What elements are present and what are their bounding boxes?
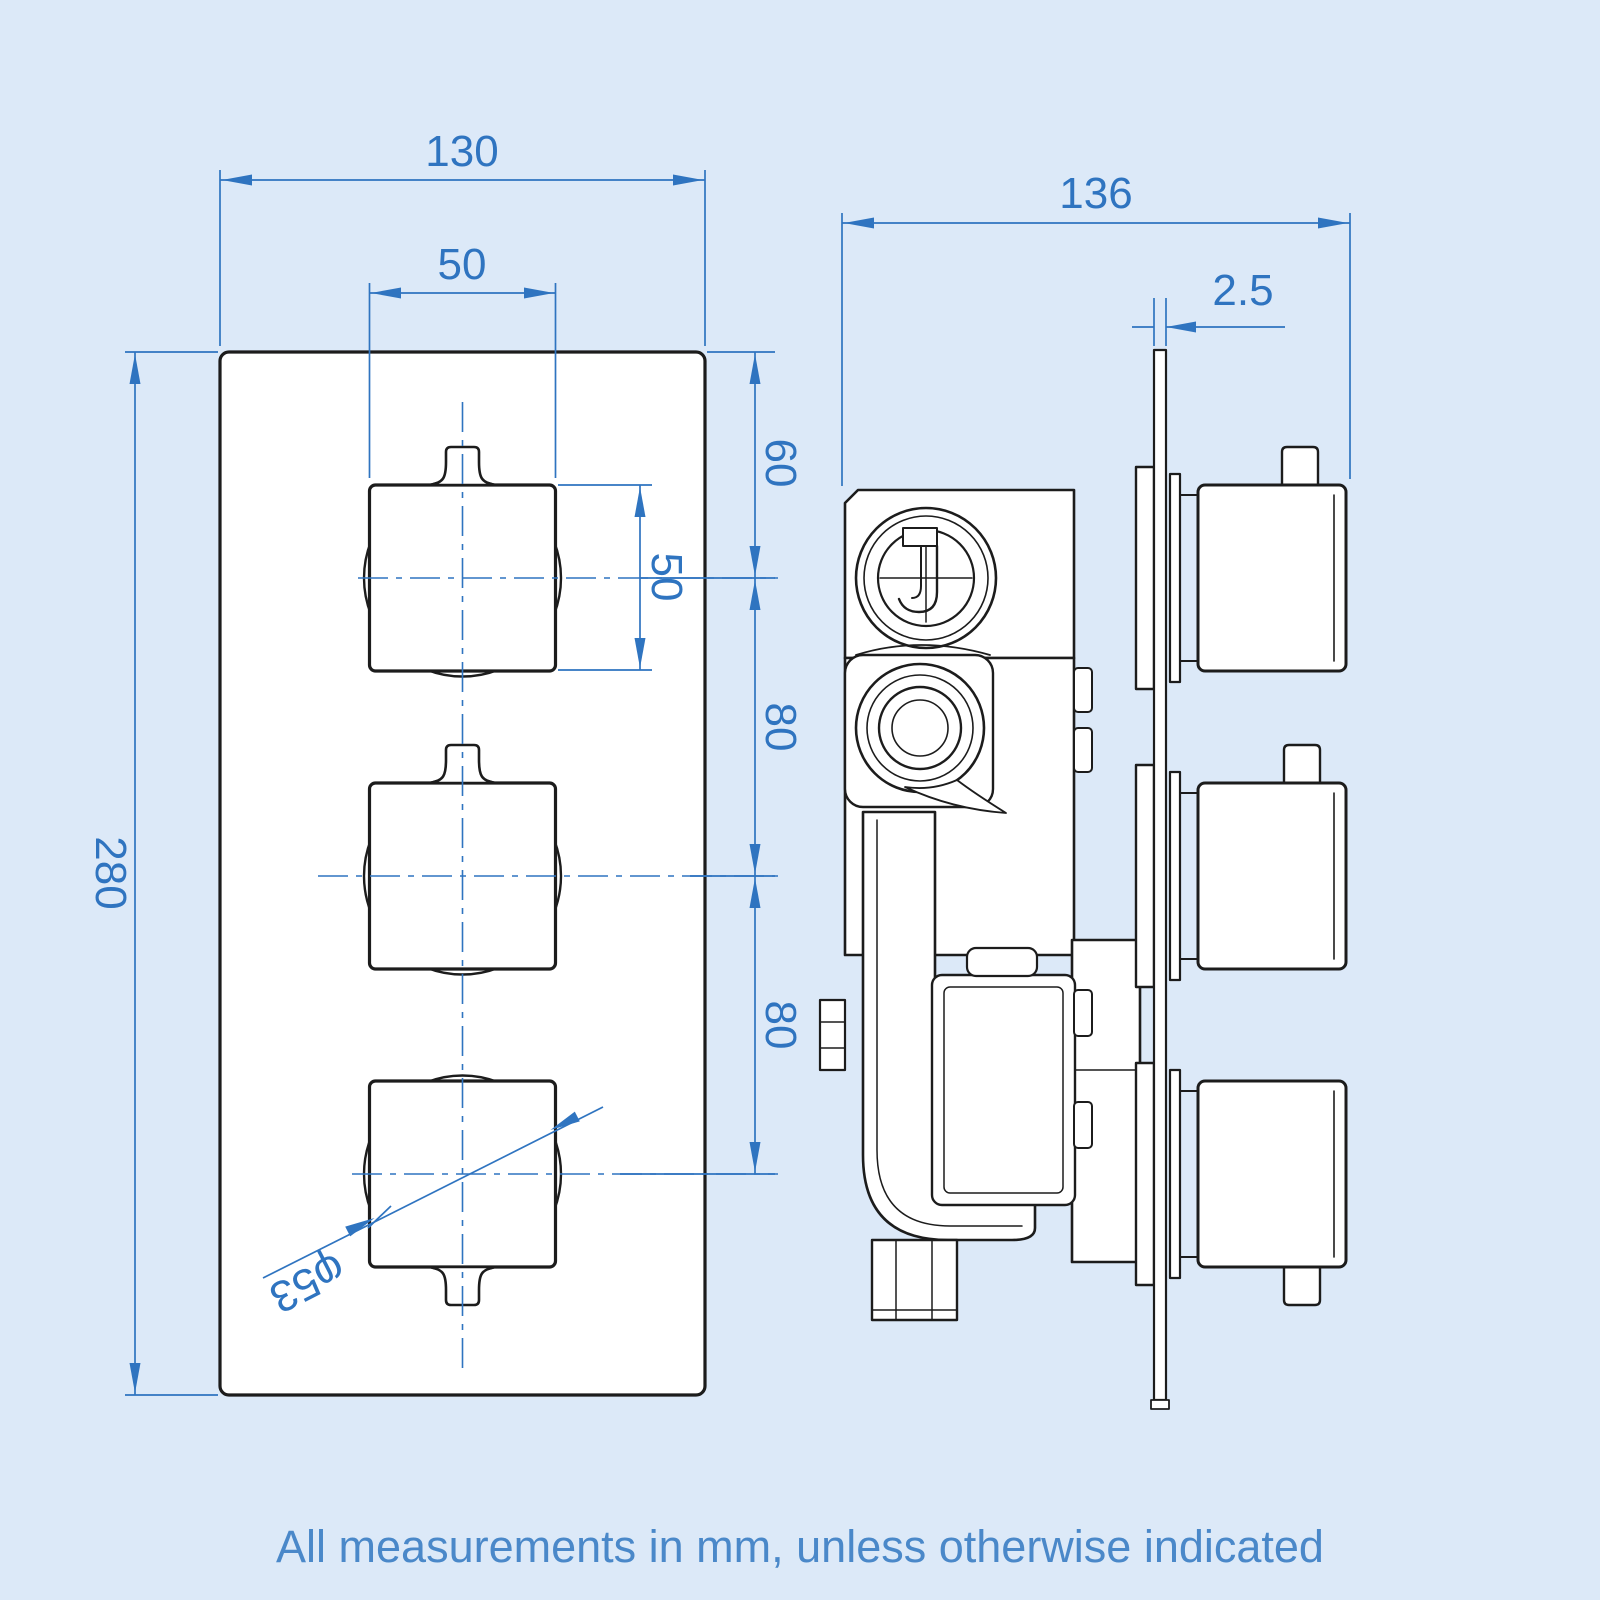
side-wall-plate [1154, 350, 1166, 1400]
knob3-backing-disc [1136, 1063, 1154, 1285]
knob-stem [1284, 1267, 1320, 1305]
knob-stem [1284, 745, 1320, 783]
dim-knob-height-label: 50 [642, 553, 691, 602]
dim-spacing-lower-label: 80 [756, 1001, 805, 1050]
knob-stem [1282, 447, 1318, 485]
knob2-backing-disc [1136, 765, 1154, 987]
body-drain-stub [872, 1240, 957, 1320]
knob1-backing-disc [1136, 467, 1154, 689]
dim-overall-height-label: 280 [86, 836, 135, 909]
knob-body [1198, 783, 1346, 969]
port-tab [903, 528, 937, 546]
measurement-note: All measurements in mm, unless otherwise… [276, 1521, 1324, 1572]
knob-body [1198, 485, 1346, 671]
knob-body [1198, 1081, 1346, 1267]
knob-flange [1170, 772, 1180, 980]
middle-port [845, 645, 1006, 813]
body-lower-block-cap [967, 948, 1037, 976]
front-view [220, 352, 778, 1395]
top-port [856, 508, 996, 648]
dim-plate-thickness-label: 2.5 [1212, 266, 1273, 315]
side-wall-plate-foot [1151, 1400, 1169, 1409]
dim-knob-width-label: 50 [438, 240, 487, 289]
knob-flange [1170, 474, 1180, 682]
bolt-bump [1074, 990, 1092, 1036]
bolt-bump [1074, 728, 1092, 772]
dim-spacing-upper-label: 80 [756, 703, 805, 752]
body-left-lug [820, 1000, 845, 1070]
bolt-bump [1074, 668, 1092, 712]
knob-flange [1170, 1070, 1180, 1278]
dim-overall-width-label: 130 [425, 127, 498, 176]
dim-top-offset-label: 60 [756, 439, 805, 488]
technical-drawing: 130 50 280 60 80 80 [0, 0, 1600, 1600]
body-lower-block [932, 975, 1075, 1205]
bolt-bump [1074, 1102, 1092, 1148]
dim-overall-depth-label: 136 [1059, 169, 1132, 218]
